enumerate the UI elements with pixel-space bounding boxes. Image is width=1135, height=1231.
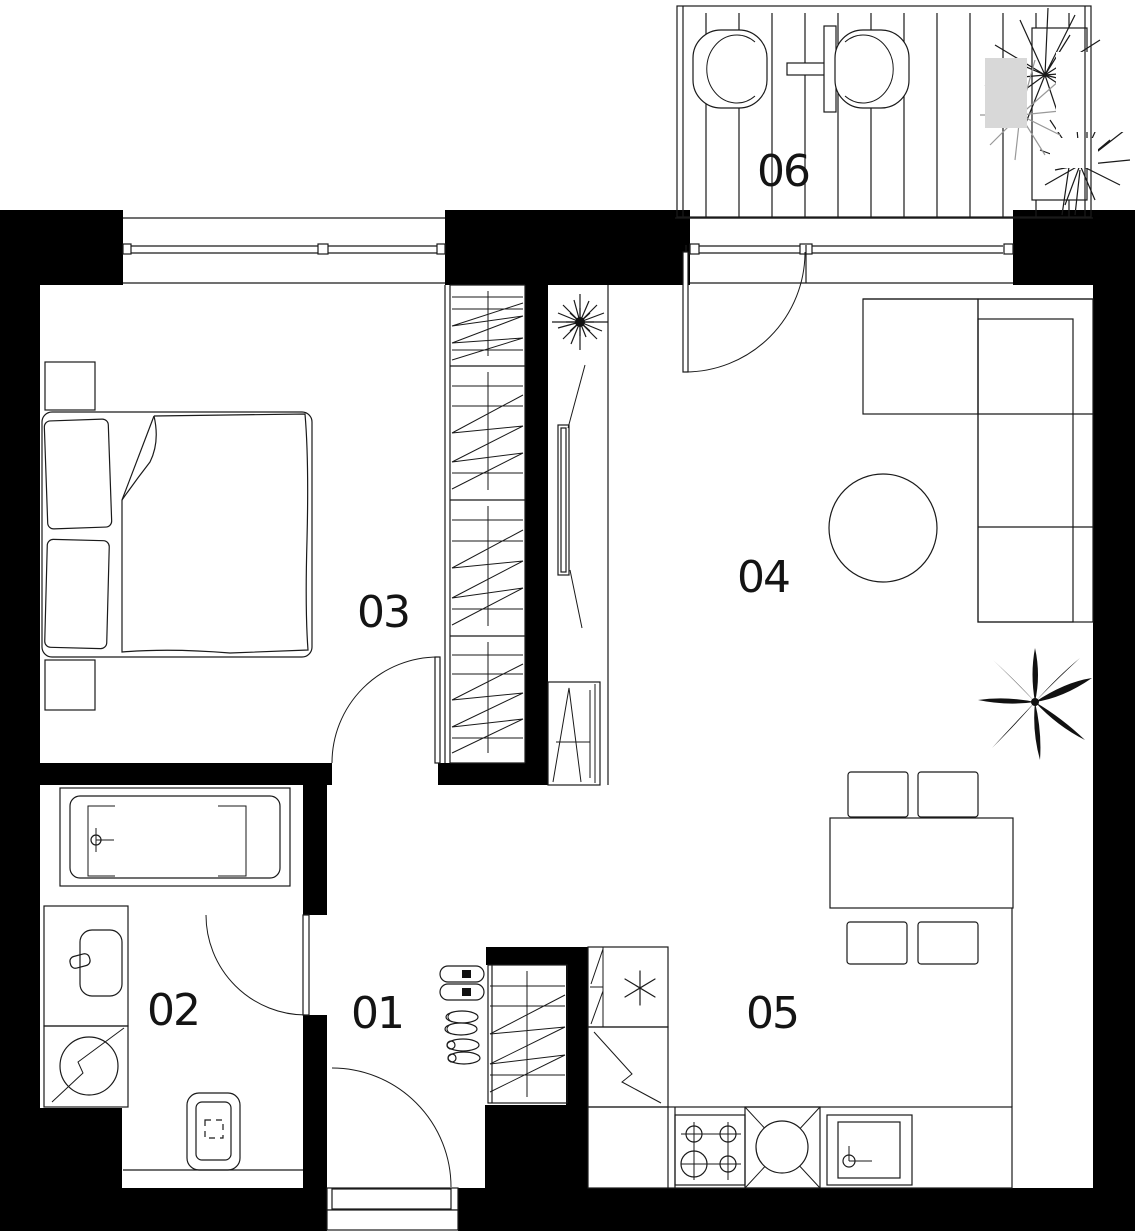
room-label-hallway: 01 (351, 988, 403, 1039)
dining-table (830, 818, 1013, 908)
tv (558, 365, 585, 628)
potted-plant-icon (552, 294, 608, 350)
fridge (588, 947, 668, 1027)
room-label-bedroom: 03 (357, 587, 409, 638)
washing-machine (44, 1026, 128, 1107)
bathtub (60, 788, 290, 886)
tall-cabinet (588, 1027, 668, 1107)
bathroom-door (206, 915, 309, 1015)
wardrobe (445, 285, 525, 763)
floor-plan: 01 02 03 04 05 06 (0, 0, 1135, 1231)
sofa (863, 299, 1093, 622)
room-label-bathroom: 02 (147, 985, 199, 1036)
tv-cabinet (548, 682, 600, 785)
chair (918, 772, 978, 817)
nightstand (45, 362, 95, 410)
balcony (675, 6, 1130, 218)
shoes-icon (440, 966, 484, 1064)
bed (42, 412, 312, 657)
balcony-window (686, 218, 1013, 283)
corner-unit (745, 1107, 820, 1188)
living-room-furniture (829, 299, 1093, 760)
hall-wardrobe (488, 965, 567, 1103)
kitchen-counter (588, 1107, 1012, 1188)
coffee-table (829, 474, 937, 582)
room-label-living-room: 04 (737, 552, 789, 603)
room-label-balcony: 06 (757, 146, 809, 197)
dining-set (830, 772, 1013, 964)
freezer-asterisk-icon (625, 971, 655, 1005)
balcony-chair (835, 30, 909, 108)
balcony-door (683, 252, 805, 372)
palm-plant-icon (978, 648, 1092, 760)
nightstand (45, 660, 95, 710)
balcony-chair (693, 30, 767, 108)
room-label-kitchen: 05 (746, 988, 798, 1039)
bedroom-door (332, 657, 440, 763)
wash-basin (44, 906, 128, 1026)
entry-door (327, 1068, 458, 1230)
bedroom-furniture (42, 285, 525, 763)
chair (848, 772, 908, 817)
tv-niche (548, 285, 608, 785)
floor-plan-drawing: 01 02 03 04 05 06 (0, 0, 1135, 1231)
toilet (187, 1093, 240, 1170)
kitchen (588, 772, 1013, 1188)
stove (675, 1115, 745, 1185)
hallway-items (440, 965, 567, 1103)
chair (918, 922, 978, 964)
chair (847, 922, 907, 964)
bedroom-window (123, 218, 445, 283)
kitchen-sink (827, 1115, 912, 1185)
